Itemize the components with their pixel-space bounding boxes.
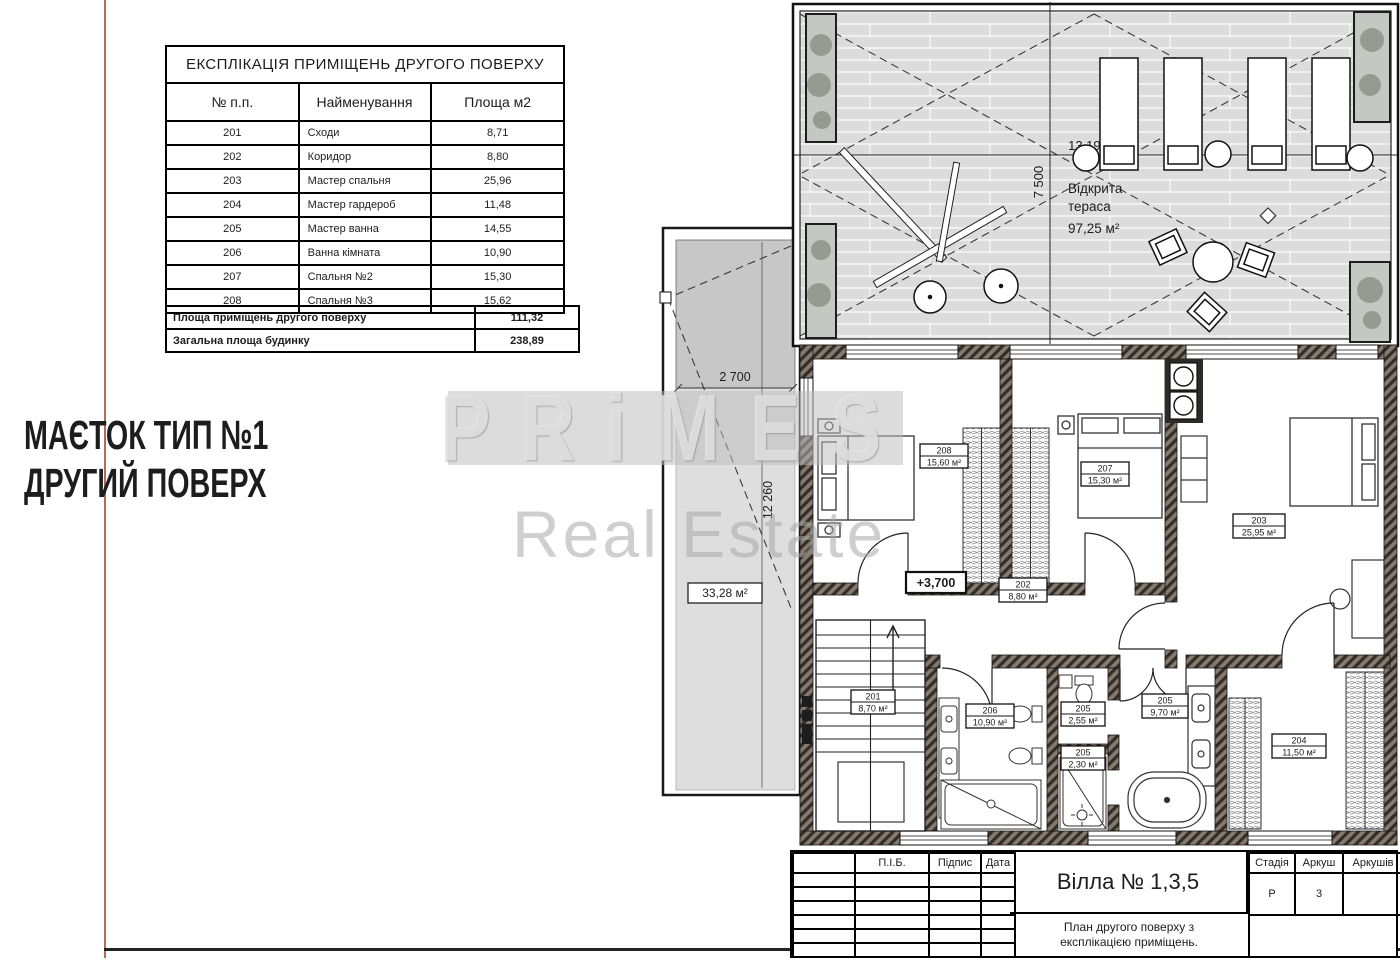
room-name: Коридор [299,145,432,169]
explication-title: ЕКСПЛІКАЦІЯ ПРИМІЩЕНЬ ДРУГОГО ПОВЕРХУ [166,46,564,83]
room-num: 202 [166,145,299,169]
svg-text:15,60 м²: 15,60 м² [927,458,961,468]
table-row: 201Сходи8,71 [166,121,564,145]
room-label-204: 204 11,50 м² [1272,734,1326,758]
svg-text:11,50 м²: 11,50 м² [1282,748,1316,758]
roof-width-dim: 2 700 [719,370,750,384]
room-label-202: 202 8,80 м² [999,578,1047,602]
room-name: Сходи [299,121,432,145]
svg-text:205: 205 [1157,696,1172,706]
roof-area-label: 33,28 м² [702,586,748,600]
room-area: 14,55 [431,217,564,241]
svg-text:8,70 м²: 8,70 м² [858,704,887,714]
explication-table: ЕКСПЛІКАЦІЯ ПРИМІЩЕНЬ ДРУГОГО ПОВЕРХУ № … [165,45,565,314]
room-name: Мастер спальня [299,169,432,193]
svg-text:201: 201 [865,692,880,702]
room-name: Спальня №2 [299,265,432,289]
svg-text:205: 205 [1075,748,1090,758]
svg-text:203: 203 [1251,516,1266,526]
room-label-205-wc: 205 2,55 м² [1061,702,1105,726]
project-title: МАЄТОК ТИП №1 ДРУГИЙ ПОВЕРХ [24,412,268,507]
col-header-num: № п.п. [166,83,299,121]
room-name: Мастер гардероб [299,193,432,217]
svg-text:15,30 м²: 15,30 м² [1088,476,1122,486]
col-header-area: Площа м2 [431,83,564,121]
title-block: П.І.Б. Підпис Дата Вілла № 1,3,5 План др… [790,850,1398,958]
sheets-label: Аркушів [1343,853,1400,873]
tb-col-name: П.І.Б. [855,853,929,873]
drawing-sheet: ЕКСПЛІКАЦІЯ ПРИМІЩЕНЬ ДРУГОГО ПОВЕРХУ № … [0,0,1400,965]
table-row: 203Мастер спальня25,96 [166,169,564,193]
stage-value: Р [1249,873,1295,915]
room-num: 201 [166,121,299,145]
terrace-label-line1: Відкрита [1068,181,1123,196]
floor-plan-drawing: 2 700 12 260 33,28 м² 13 190 7 500 Ві [650,0,1400,850]
svg-text:208: 208 [936,446,951,456]
tb-empty-header [793,853,855,873]
svg-text:+3,700: +3,700 [917,576,956,590]
terrace-height-dim: 7 500 [1031,166,1046,199]
roof-plane-left: 2 700 12 260 33,28 м² [660,228,800,795]
summary-value: 238,89 [475,329,579,352]
room-area: 10,90 [431,241,564,265]
room-area: 8,71 [431,121,564,145]
sheet-label: Аркуш [1295,853,1343,873]
room-area: 11,48 [431,193,564,217]
stage-label: Стадія [1249,853,1295,873]
svg-text:202: 202 [1015,580,1030,590]
room-label-203: 203 25,95 м² [1233,514,1285,538]
table-row: 204Мастер гардероб11,48 [166,193,564,217]
room-label-205-bath: 205 9,70 м² [1142,694,1188,718]
table-row: 205Мастер ванна14,55 [166,217,564,241]
room-num: 206 [166,241,299,265]
svg-text:2,30 м²: 2,30 м² [1068,760,1097,770]
room-num: 204 [166,193,299,217]
summary-value: 111,32 [475,306,579,329]
document-subtitle-line1: План другого поверху з [1064,920,1194,935]
room-num: 205 [166,217,299,241]
room-area: 25,96 [431,169,564,193]
room-label-207: 207 15,30 м² [1081,462,1129,486]
summary-label: Площа приміщень другого поверху [166,306,475,329]
svg-text:9,70 м²: 9,70 м² [1150,708,1179,718]
room-num: 207 [166,265,299,289]
table-row: 202Коридор8,80 [166,145,564,169]
table-row: 207Спальня №215,30 [166,265,564,289]
svg-text:207: 207 [1097,464,1112,474]
room-label-205-shower: 205 2,30 м² [1061,746,1105,770]
bed-203 [1290,418,1378,506]
room-name: Мастер ванна [299,217,432,241]
svg-text:205: 205 [1075,704,1090,714]
terrace-area-label: 97,25 м² [1068,221,1120,236]
room-num: 203 [166,169,299,193]
room-label-201: 201 8,70 м² [851,690,895,714]
electrical-panel-icons [802,696,812,744]
room-name: Ванна кімната [299,241,432,265]
sheet-value: 3 [1295,873,1343,915]
room-area: 15,30 [431,265,564,289]
roof-height-dim: 12 260 [761,481,775,519]
terrace-label-line2: тераса [1068,199,1111,214]
staircase [816,620,925,831]
col-header-name: Найменування [299,83,432,121]
title-block-signatures: П.І.Б. Підпис Дата [792,852,1016,958]
svg-text:8,80 м²: 8,80 м² [1008,592,1037,602]
title-block-stage: Стадія Аркуш Аркушів Р 3 [1248,852,1400,958]
dresser-203 [1181,436,1207,502]
table-row: 206Ванна кімната10,90 [166,241,564,265]
summary-row: Загальна площа будинку238,89 [166,329,579,352]
tb-col-signature: Підпис [929,853,981,873]
document-title: Вілла № 1,3,5 [1010,852,1248,914]
level-mark: +3,700 [906,572,966,593]
utility-shaft [1165,359,1203,423]
document-subtitle: План другого поверху з експлікацією прим… [1010,914,1248,956]
svg-text:10,90 м²: 10,90 м² [973,718,1007,728]
summary-label: Загальна площа будинку [166,329,475,352]
room-label-208: 208 15,60 м² [920,444,968,468]
project-title-line2: ДРУГИЙ ПОВЕРХ [24,460,268,508]
summary-table: Площа приміщень другого поверху111,32 За… [165,305,565,353]
project-title-line1: МАЄТОК ТИП №1 [24,412,268,460]
svg-text:204: 204 [1291,736,1306,746]
svg-text:2,55 м²: 2,55 м² [1068,716,1097,726]
building-plan: +3,700 208 15,60 м² 207 15,30 м² 203 25,… [800,345,1397,845]
summary-row: Площа приміщень другого поверху111,32 [166,306,579,329]
terrace: 13 190 7 500 Відкрита тераса 97,25 м² [793,2,1398,346]
tb-bottom-cell [1249,915,1400,957]
document-subtitle-line2: експлікацією приміщень. [1060,935,1198,950]
sheets-value [1343,873,1400,915]
room-area: 8,80 [431,145,564,169]
svg-text:25,95 м²: 25,95 м² [1242,528,1276,538]
bed-208 [818,419,914,537]
room-label-206: 206 10,90 м² [966,704,1014,728]
svg-text:206: 206 [982,706,997,716]
